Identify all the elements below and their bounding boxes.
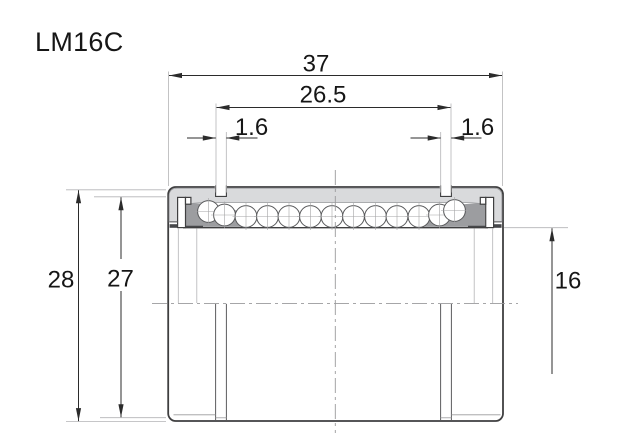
seal-lip-right	[494, 224, 502, 228]
arrowhead	[118, 404, 123, 417]
arrowhead	[428, 135, 441, 140]
dim-groove-width-left: 1.6	[187, 114, 268, 193]
seal-channel-left	[178, 197, 186, 227]
arrowhead	[203, 135, 216, 140]
part-title: LM16C	[35, 27, 124, 57]
arrowhead	[489, 73, 502, 78]
dim-value-groove-width-left: 1.6	[235, 114, 268, 141]
seal-lip-left	[170, 224, 178, 228]
dim-value-overall-length: 37	[303, 51, 330, 78]
drawing-canvas: LM16C	[0, 0, 640, 440]
ring-groove-left	[216, 185, 227, 196]
arrowhead	[217, 105, 230, 110]
dim-value-groove-span: 26.5	[300, 82, 347, 109]
arrowhead	[169, 73, 182, 78]
dim-bore-diameter: 16	[504, 228, 581, 374]
dim-groove-width-right: 1.6	[411, 114, 495, 193]
bearing-drawing: LM16C	[0, 0, 640, 440]
seal-channel-right	[486, 197, 494, 227]
dim-outer-diameter: 28	[48, 190, 166, 422]
arrowhead	[118, 197, 123, 210]
arrowhead	[76, 190, 81, 203]
arrowhead	[76, 408, 81, 421]
dim-value-outer-diameter: 28	[48, 267, 75, 294]
dim-overall-length: 37	[169, 51, 503, 187]
seal-step-right	[480, 197, 485, 204]
ring-groove-right	[441, 185, 452, 196]
dim-value-groove-diameter: 27	[107, 266, 134, 293]
dim-value-groove-width-right: 1.6	[461, 114, 494, 141]
arrowhead	[438, 105, 451, 110]
dim-groove-diameter: 27	[94, 197, 166, 418]
seal-step-left	[186, 197, 191, 204]
dim-value-bore-diameter: 16	[555, 268, 582, 295]
arrowhead	[549, 228, 554, 241]
